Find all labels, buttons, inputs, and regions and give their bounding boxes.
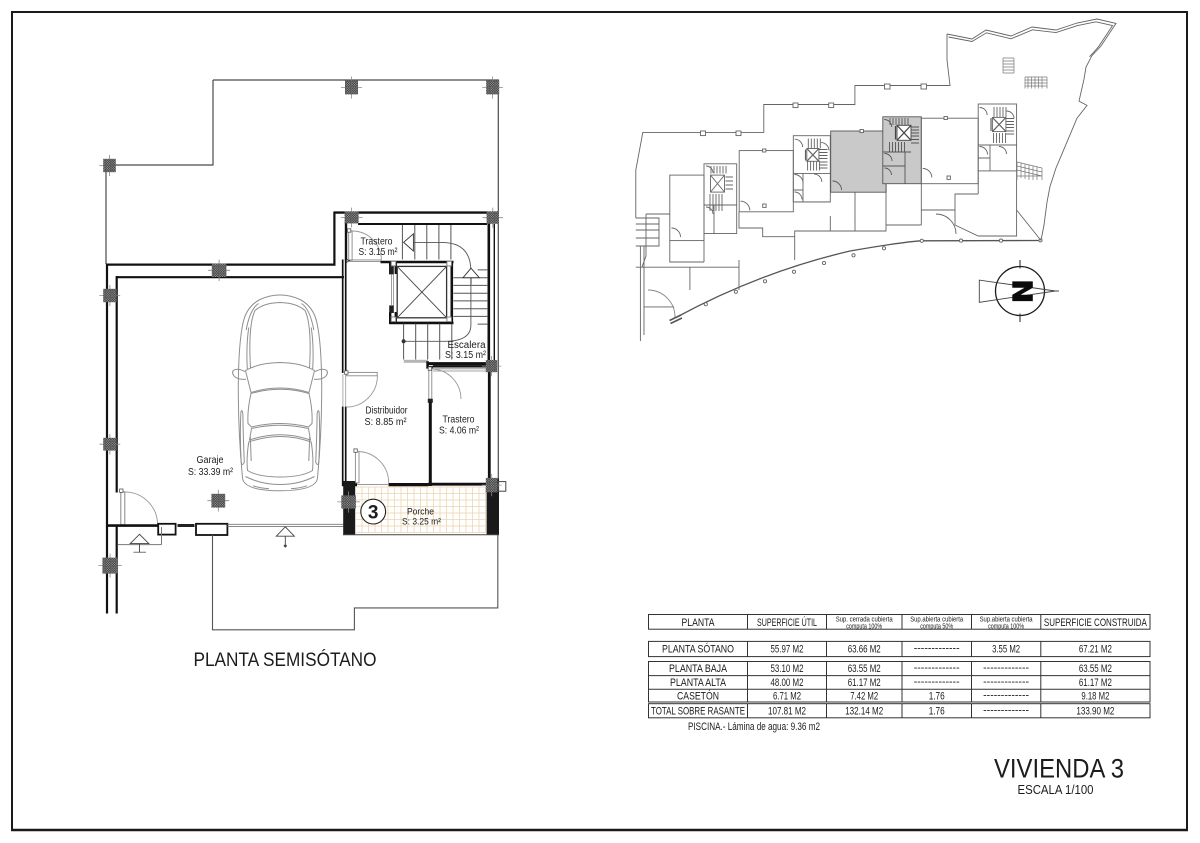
svg-text:67.21 M2: 67.21 M2 <box>1079 643 1112 655</box>
svg-text:S: 8.85 m²: S: 8.85 m² <box>365 417 408 428</box>
svg-text:Garaje: Garaje <box>197 455 224 466</box>
svg-text:PLANTA BAJA: PLANTA BAJA <box>669 663 728 675</box>
svg-text:TOTAL SOBRE RASANTE: TOTAL SOBRE RASANTE <box>651 706 745 718</box>
svg-text:-------------: ------------- <box>914 642 960 654</box>
svg-text:-------------: ------------- <box>914 676 960 688</box>
svg-text:132.14 M2: 132.14 M2 <box>845 706 883 718</box>
svg-text:53.10 M2: 53.10 M2 <box>771 663 804 675</box>
svg-text:107.81 M2: 107.81 M2 <box>768 706 806 718</box>
svg-text:48.00 M2: 48.00 M2 <box>771 677 804 689</box>
svg-text:3: 3 <box>368 502 379 523</box>
svg-text:9.18 M2: 9.18 M2 <box>1081 691 1109 703</box>
svg-text:ESCALA 1/100: ESCALA 1/100 <box>1018 782 1094 797</box>
svg-text:-------------: ------------- <box>983 662 1029 674</box>
svg-text:computa 100%: computa 100% <box>846 621 882 630</box>
svg-text:PLANTA SEMISÓTANO: PLANTA SEMISÓTANO <box>194 649 377 671</box>
svg-text:6.71 M2: 6.71 M2 <box>773 691 801 703</box>
svg-text:55.97 M2: 55.97 M2 <box>771 643 804 655</box>
svg-text:63.66 M2: 63.66 M2 <box>848 643 881 655</box>
svg-text:SUPERFICIE CONSTRUIDA: SUPERFICIE CONSTRUIDA <box>1044 617 1148 629</box>
svg-text:S: 3.15 m²: S: 3.15 m² <box>445 350 487 361</box>
svg-text:-------------: ------------- <box>983 676 1029 688</box>
svg-text:SUPERFICIE ÚTIL: SUPERFICIE ÚTIL <box>757 616 817 629</box>
svg-text:CASETÓN: CASETÓN <box>677 690 719 703</box>
svg-text:VIVIENDA 3: VIVIENDA 3 <box>994 754 1124 784</box>
svg-text:61.17 M2: 61.17 M2 <box>1079 677 1112 689</box>
svg-text:computa 50%: computa 50% <box>920 621 953 630</box>
svg-text:S: 33.39 m²: S: 33.39 m² <box>188 467 234 478</box>
svg-text:61.17 M2: 61.17 M2 <box>848 677 881 689</box>
svg-text:Distribuidor: Distribuidor <box>366 406 409 417</box>
svg-text:63.55 M2: 63.55 M2 <box>1079 663 1112 675</box>
svg-text:-------------: ------------- <box>983 705 1029 717</box>
svg-text:PLANTA ALTA: PLANTA ALTA <box>670 677 727 689</box>
svg-text:-------------: ------------- <box>914 662 960 674</box>
svg-text:63.55 M2: 63.55 M2 <box>848 663 881 675</box>
svg-text:PISCINA.- Lámina de agua: 9.36: PISCINA.- Lámina de agua: 9.36 m2 <box>688 721 820 733</box>
svg-text:PLANTA: PLANTA <box>682 617 716 629</box>
svg-text:PLANTA SÓTANO: PLANTA SÓTANO <box>662 642 734 655</box>
svg-text:133.90 M2: 133.90 M2 <box>1076 706 1114 718</box>
svg-text:S: 3.25 m²: S: 3.25 m² <box>402 517 441 528</box>
svg-text:1.76: 1.76 <box>929 706 945 718</box>
svg-text:7.42 M2: 7.42 M2 <box>850 691 878 703</box>
svg-text:S: 4.06 m²: S: 4.06 m² <box>439 426 480 437</box>
svg-text:computa 100%: computa 100% <box>988 621 1024 630</box>
svg-text:Trastero: Trastero <box>443 415 475 426</box>
svg-text:3.55 M2: 3.55 M2 <box>992 643 1020 655</box>
svg-text:S: 3.15 m²: S: 3.15 m² <box>359 247 399 258</box>
svg-text:1.76: 1.76 <box>929 691 945 703</box>
svg-text:-------------: ------------- <box>983 690 1029 702</box>
